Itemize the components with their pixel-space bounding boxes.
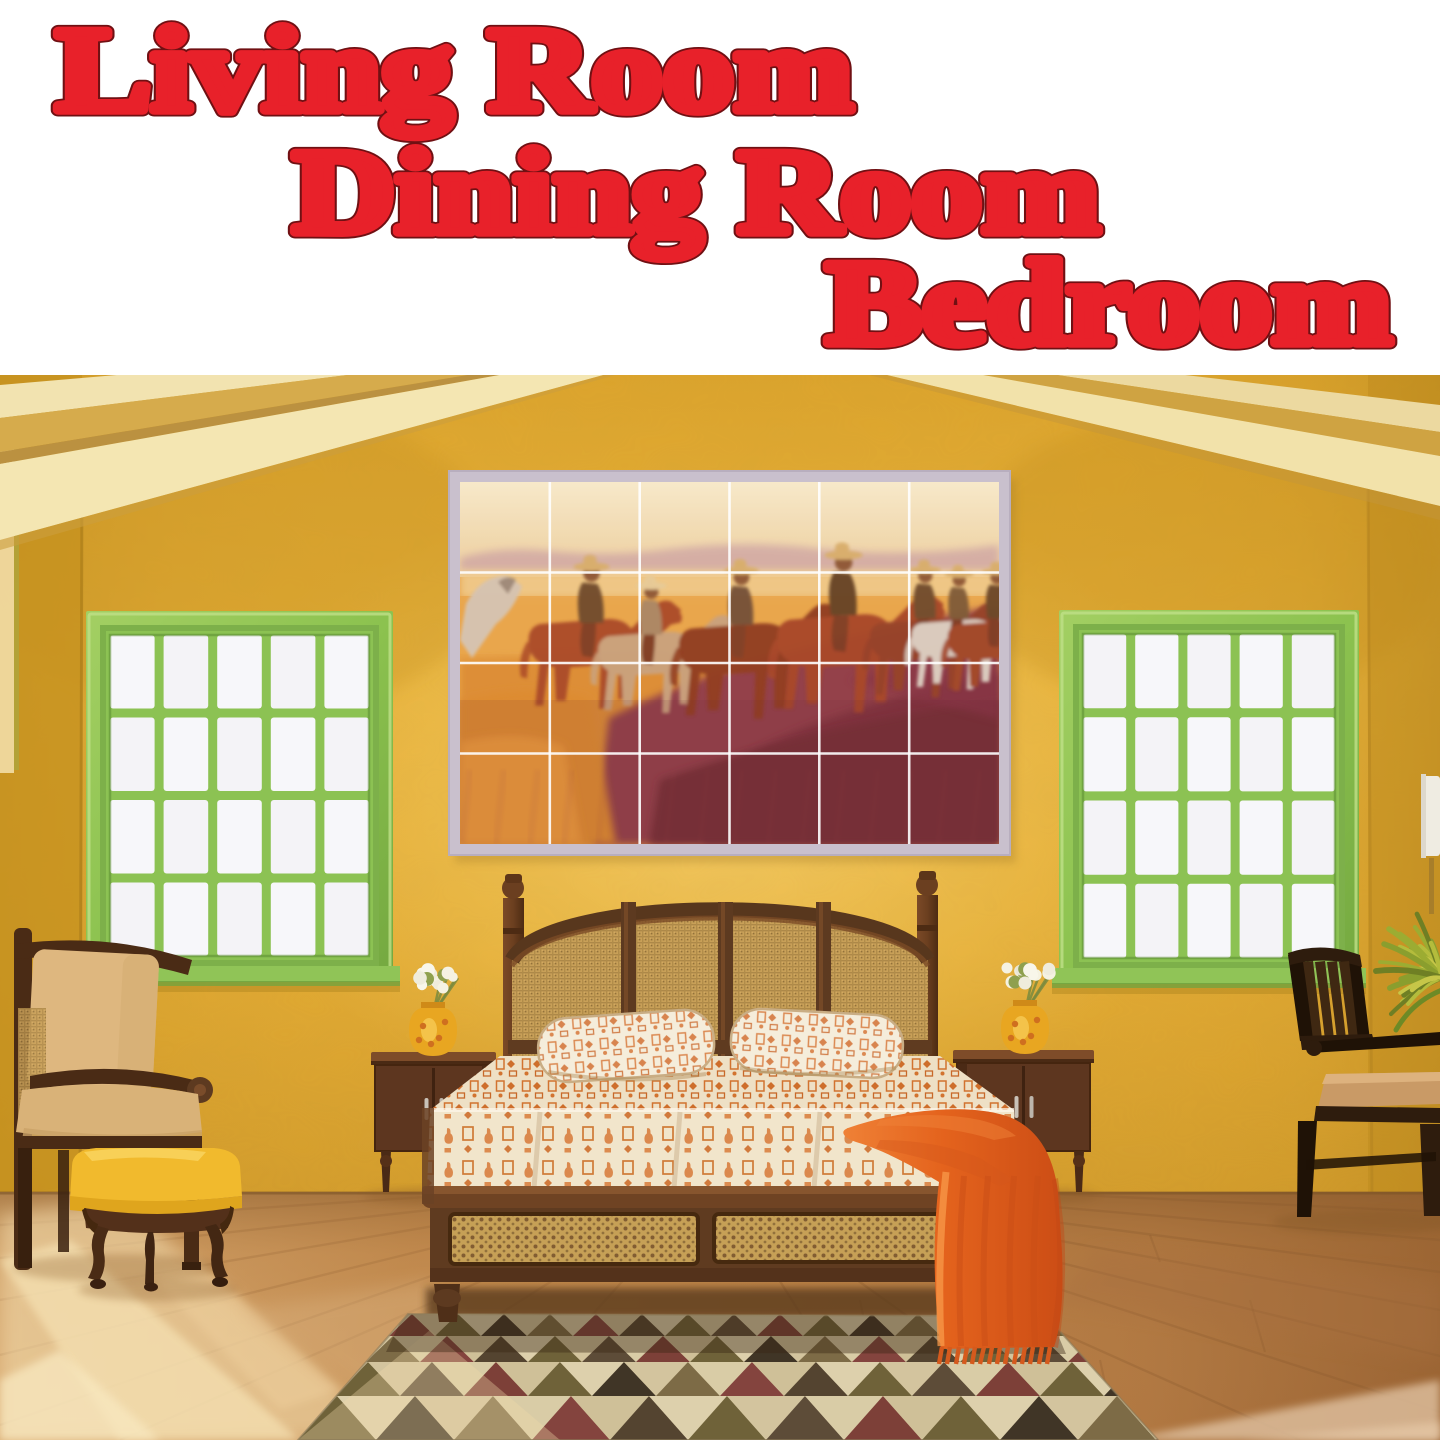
svg-text:Bedroom: Bedroom bbox=[826, 236, 1392, 369]
svg-text:Living Room: Living Room bbox=[56, 3, 853, 137]
